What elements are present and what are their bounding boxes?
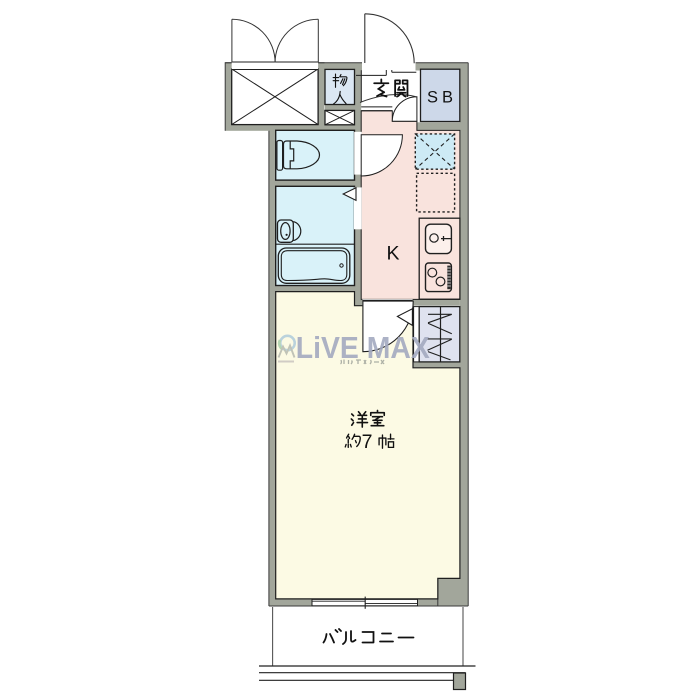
svg-text:LiVE MAX: LiVE MAX <box>296 331 431 365</box>
svg-text:7: 7 <box>362 431 373 453</box>
svg-text:SB: SB <box>427 89 457 107</box>
svg-text:K: K <box>386 243 399 265</box>
